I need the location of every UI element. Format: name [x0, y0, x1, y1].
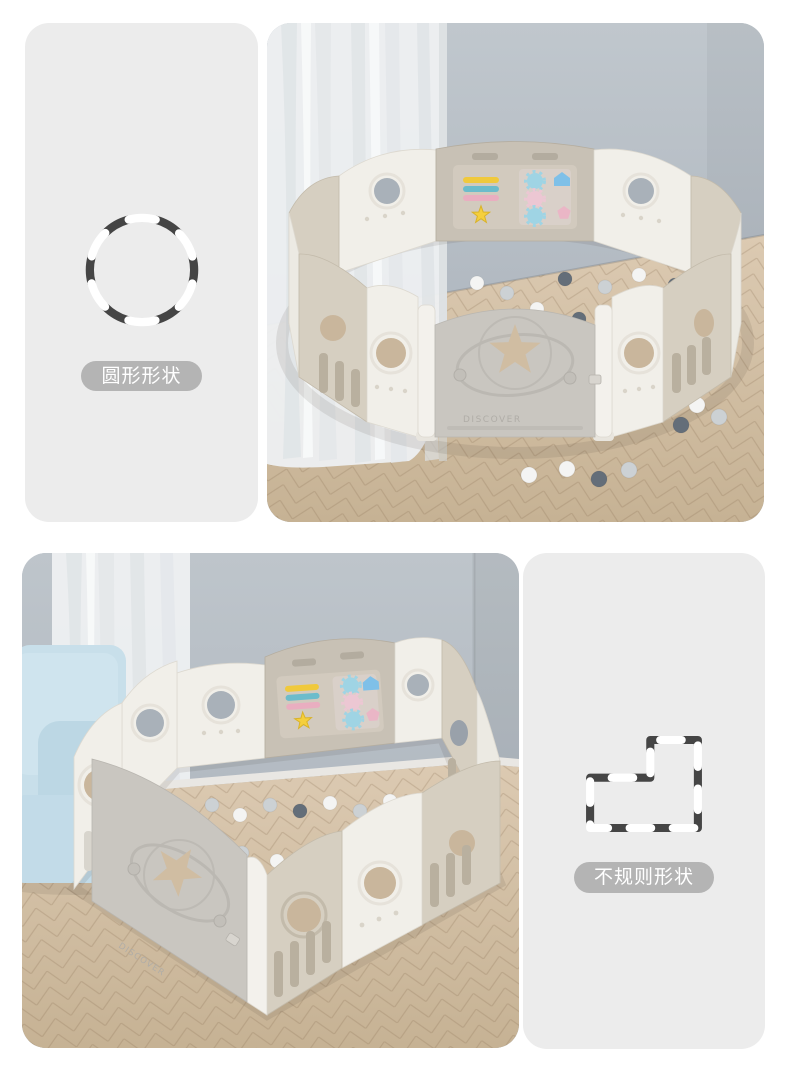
- dashed-circle-icon: [78, 204, 206, 336]
- shape-label-round: 圆形形状: [81, 361, 201, 392]
- gate-brand-text: DISCOVER: [463, 415, 522, 425]
- playpen-gate: DISCOVER: [416, 305, 614, 441]
- activity-panel: [436, 142, 594, 242]
- photo-irregular-playpen: DISCOVER: [22, 553, 519, 1048]
- dashed-irregular-shape-icon: [581, 731, 707, 837]
- activity-panel: [265, 639, 395, 758]
- shape-panel-round: 圆形形状: [25, 23, 258, 522]
- product-detail-image: 圆形形状: [0, 0, 790, 1075]
- irregular-playpen-scene: DISCOVER: [22, 553, 519, 1048]
- shape-label-irregular: 不规则形状: [574, 862, 714, 893]
- round-playpen-scene: DISCOVER: [267, 23, 764, 522]
- shape-panel-irregular: 不规则形状: [523, 553, 765, 1049]
- photo-round-playpen: DISCOVER: [267, 23, 764, 522]
